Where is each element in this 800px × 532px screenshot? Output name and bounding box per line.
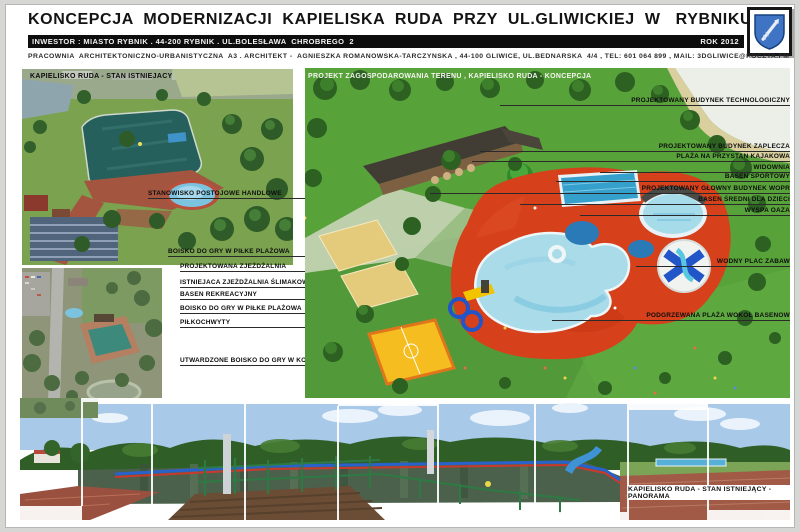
callout-label: BASEN SPORTOWY — [556, 173, 790, 182]
studio-credit-line: PRACOWNIA ARCHITEKTONICZNO-URBANISTYCZNA… — [28, 53, 789, 60]
investor-bar: INWESTOR : MIASTO RYBNIK . 44-200 RYBNIK… — [28, 35, 744, 48]
island-pool — [565, 221, 599, 245]
callout-label: BASEN ŚREDNI DLA DZIECI — [520, 196, 790, 205]
callout-label: PROJEKTOWANY GŁOWNY BUDYNEK WOPR — [430, 185, 790, 194]
year-text: ROK 2012 — [700, 37, 744, 46]
panorama-label: KAPIELISKO RUDA - STAN ISTNIEJĄCY - PANO… — [628, 485, 790, 500]
callout-label: WIDOWNIA — [600, 164, 790, 173]
page-title: KONCEPCJA MODERNIZACJI KAPIELISKA RUDA P… — [28, 11, 752, 29]
rybnik-coat-of-arms-icon — [747, 7, 792, 56]
callout-label: STANOWISKO POSTOJOWE HANDLOWE — [148, 190, 305, 199]
callout-label: PROJEKTOWANY BUDYNEK TECHNOLOGICZNY — [500, 97, 790, 106]
render-title: PROJEKT ZAGOSPODAROWANIA TERENU , KAPIEL… — [308, 73, 591, 80]
callout-label: PLAŻA NA PRZYSTAN KAJAKOWA — [472, 153, 790, 162]
callout-label: WODNY PLAC ZABAW — [636, 258, 790, 267]
island-pool — [628, 240, 654, 258]
concept-render — [305, 68, 790, 400]
aerial-photo-existing — [22, 69, 293, 265]
investor-text: INWESTOR : MIASTO RYBNIK . 44-200 RYBNIK… — [28, 37, 354, 46]
panorama-collage — [20, 398, 790, 520]
callout-label: PROJEKTOWANY BUDYNEK ZAPLECZA — [480, 143, 790, 152]
callout-label: BOISKO DO GRY W PIŁKE PLAŻOWA — [168, 248, 308, 257]
callout-label: WYSPA OAZA — [580, 207, 790, 216]
photo-label-existing: KAPIELISKO RUDA - STAN ISTNIEJACY — [30, 73, 173, 80]
presentation-board: KONCEPCJA MODERNIZACJI KAPIELISKA RUDA P… — [0, 0, 800, 532]
satellite-photo — [22, 268, 162, 401]
callout-label: PODGRZEWANA PLAŻA WOKOŁ BASENOW — [552, 312, 790, 321]
